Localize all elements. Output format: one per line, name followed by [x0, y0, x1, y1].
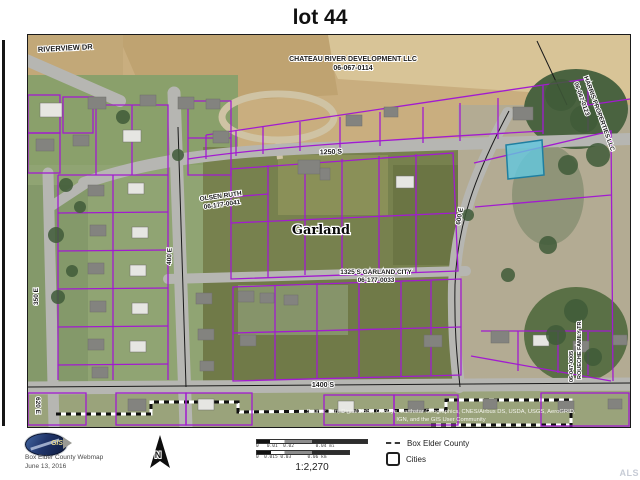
gis-logo-flag: [63, 437, 72, 449]
label-street-1250s: 1250 S: [320, 149, 343, 157]
label-street-350e: 350 E: [33, 287, 40, 305]
label-chateau-owner: CHATEAU RIVER DEVELOPMENT LLC: [289, 56, 417, 63]
gis-logo: GIS: [25, 433, 67, 456]
map-attribution-line1: Source: Esri, DigitalGlobe, GeoEye, Eart…: [306, 409, 575, 415]
label-city-garland: Garland: [292, 223, 350, 238]
county-line-symbol: [386, 442, 400, 444]
label-roueche-owner: ROUECHE FAMILY TR: [577, 322, 583, 379]
page-neatline: [2, 40, 5, 426]
north-arrow-label: N: [155, 450, 162, 460]
corner-watermark: ALS: [620, 468, 640, 478]
webmap-title: Box Elder County Webmap: [25, 454, 103, 461]
legend: Box Elder County Cities: [386, 435, 469, 467]
highlighted-lot-44-parcel: [506, 140, 544, 179]
page-title: lot 44: [0, 6, 640, 30]
scale-ticks-miles: 0 0.01 0.02 0.04 mi: [256, 444, 368, 449]
label-street-400e: 400 E: [166, 247, 174, 265]
cities-square-symbol: [386, 452, 400, 466]
label-street-1325s: 1325 S GARLAND CITY: [340, 269, 412, 276]
label-street-1400s: 1400 S: [312, 382, 335, 389]
aerial-map-svg: RIVERVIEW DR CHATEAU RIVER DEVELOPMENT L…: [28, 35, 630, 427]
scale-ratio: 1:2,270: [256, 462, 368, 473]
north-arrow: N: [143, 434, 177, 477]
gis-logo-text: GIS: [51, 440, 63, 447]
aerial-map: RIVERVIEW DR CHATEAU RIVER DEVELOPMENT L…: [27, 34, 631, 428]
legend-item-county: Box Elder County: [386, 435, 469, 451]
label-roueche-parcel-id: 06-047-0005: [569, 351, 575, 382]
scale-bar: 0 0.01 0.02 0.04 mi 0 0.015 0.03 0.06 km…: [256, 438, 368, 473]
webmap-date: June 13, 2016: [25, 463, 66, 470]
legend-item-label: Cities: [406, 455, 426, 464]
label-street-620e: 620 E: [34, 397, 41, 415]
legend-item-label: Box Elder County: [407, 439, 469, 448]
label-chateau-parcel-id: 06-067-0114: [333, 65, 372, 72]
legend-item-cities: Cities: [386, 451, 469, 467]
label-1325s-parcel-id: 06-177-0033: [358, 277, 395, 284]
scale-ticks-km: 0 0.015 0.03 0.06 km: [256, 455, 368, 460]
map-attribution-line2: IGN, and the GIS User Community: [396, 417, 485, 423]
